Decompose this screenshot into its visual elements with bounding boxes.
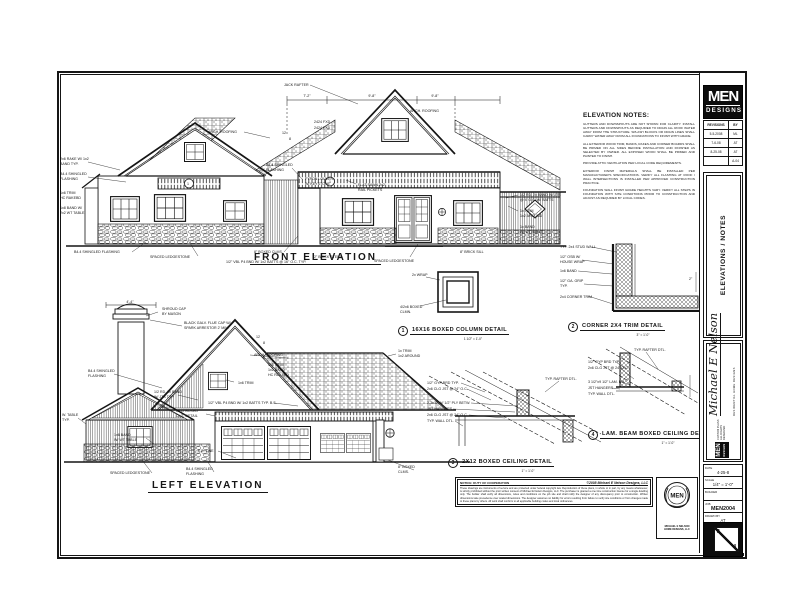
callout-label: 12	[256, 335, 260, 339]
callout-label: 1x6 TRIM	[268, 363, 284, 367]
revisions-by-header: BY	[729, 121, 742, 129]
callout-label: 1/2" GA. GRIP	[560, 279, 584, 283]
revision-date: 8-25-08	[704, 148, 729, 156]
callout-label: 2x6 RAKE W/ 1x2	[60, 157, 89, 161]
callout-label: @ 4' O.C. W/ BATTS	[520, 198, 554, 202]
sheet-number-box: 2 4	[703, 522, 743, 557]
revision-date: 7-6-08	[704, 139, 729, 147]
callout-label: HC RAKEBD	[268, 373, 289, 377]
sheet-number-diagonal: 2 4	[714, 527, 739, 552]
callout-label: 2x WRAP	[412, 273, 428, 277]
callout-label: 1x TRIM	[520, 209, 534, 213]
callout-label: W/ KEYSTONE	[305, 182, 330, 186]
revision-by: AT	[729, 139, 742, 147]
detail-4-number: 4	[588, 430, 598, 440]
date-value: 4-25-8	[705, 470, 741, 475]
elevation-notes-list: GUTTERS AND DOWNSPOUTS ARE NOT SHOWN FOR…	[583, 122, 695, 200]
revisions-header: REVISIONS	[704, 121, 729, 129]
callout-label: TYP.	[560, 284, 568, 288]
callout-label: FLASHING	[88, 374, 106, 378]
detail-2-number: 2	[568, 322, 578, 332]
callout-label: 1x2 AROUND	[520, 214, 543, 218]
callout-label: TYP. 2x4 STUD WALL	[560, 245, 596, 249]
callout-label: 2X12 BOXED	[176, 409, 198, 413]
callout-label: 3 1/2"x9 1/2" LAM. BM.	[588, 380, 625, 384]
drawing-sheet-page: JACK RAFTER7'-2"9'-8"9'-8"ARCH. ROOFINGA…	[0, 0, 792, 612]
revisions-header-row: REVISIONS BY	[704, 121, 742, 129]
revisions-rows: 5-5-2008 ML 7-6-08 AT 8-25-08 AT	[704, 129, 742, 165]
callout-label: SPACED LEDGESTONE	[150, 255, 191, 259]
callout-label: 8	[289, 137, 291, 141]
left-elevation-drawing: 4'-4"SHROUD CAPBY MASONBLACK GALV. FLUE …	[58, 296, 488, 501]
scale-value: 1/4" = 1'-0"	[705, 482, 741, 487]
callout-label: 1x6 BAND	[560, 269, 577, 273]
copyright-notice-label: NOTICE: DUTY OF COOPERATION	[460, 481, 509, 485]
callout-label: 1	[329, 180, 331, 184]
elevation-note-item: GUTTERS AND DOWNSPOUTS ARE NOT SHOWN FOR…	[583, 122, 695, 138]
info-row-builder: BUILDER	[704, 488, 742, 500]
callout-label: SPACED LEDGESTONE	[110, 471, 151, 475]
callout-label: ARCH. ROOFING	[410, 109, 439, 113]
callout-label: 1x8 BAND W/	[60, 206, 82, 210]
firm-logo: MEN DESIGNS	[703, 85, 743, 119]
callout-label: HC RAKEBD	[60, 196, 81, 200]
callout-label: W/ JTS TYP.	[154, 395, 174, 399]
elevation-note-item: EXTERIOR FINISH MATERIALS SHALL BE INSTA…	[583, 169, 695, 185]
callout-label: 8	[263, 341, 265, 345]
signature-logo: MEN DESIGNS	[715, 442, 729, 458]
callout-label: BAND TYP.	[60, 162, 79, 166]
callout-label: FLASHING	[186, 472, 204, 476]
detail-2-title: CORNER 2X4 TRIM DETAIL	[580, 323, 665, 331]
callout-label: BLACK GALV. FLUE CAP W/	[184, 321, 231, 325]
elevation-note-item: ALL EXTERIOR WOOD TRIM, BANDS, RAKES AND…	[583, 142, 695, 158]
callout-label: 1x2 AROUND	[398, 354, 421, 358]
copyright-owner-label: ©2008 Michael E Nelson Designs, LLC	[587, 481, 648, 485]
elevation-notes-title: ELEVATION NOTES:	[583, 112, 695, 119]
revisions-table: REVISIONS BY 5-5-2008 ML 7-6-08 AT	[703, 120, 743, 166]
info-row-date: DATE 4-25-8	[704, 465, 742, 476]
callout-label: F.G. LINE	[198, 449, 214, 453]
callout-label: 1x6 TRIM	[238, 381, 254, 385]
left-elevation-title: LEFT ELEVATION	[148, 480, 268, 493]
elevation-notes: ELEVATION NOTES: GUTTERS AND DOWNSPOUTS …	[583, 112, 695, 204]
elevation-note-item: PROVIDE ATTIC VENTILATION PER LOCAL CODE…	[583, 161, 695, 165]
seal-caption-line2: HOME DESIGNS, LLC	[657, 528, 697, 531]
seal-monogram: MEN	[670, 494, 683, 500]
lam-beam-detail-drawing: TYP. RAFTER DTL.1/2" GYP BRD TYP.2x6 CLG…	[586, 345, 700, 419]
callout-label: 1x6 TRIM	[60, 191, 76, 195]
callout-label: W/ WT TABLE	[520, 230, 544, 234]
callout-label: CLMS.	[398, 470, 409, 474]
callout-label: 4'-4"	[126, 300, 134, 304]
callout-label: BY MASON	[162, 312, 181, 316]
callout-label: ARCH. ROOFING	[254, 353, 283, 357]
revision-by: AT	[729, 148, 742, 156]
callout-label: 2424 FXD	[314, 126, 331, 130]
callout-label: TYP. RAFTER DTL.	[634, 348, 666, 352]
callout-label: SHROUD CAP	[162, 307, 187, 311]
builder-label: BUILDER	[705, 490, 741, 494]
callout-label: 2"	[689, 277, 693, 281]
callout-label: 1x BAND	[520, 225, 535, 229]
project-info-table: DATE 4-25-8 SCALE 1/4" = 1'-0" BUILDER J…	[703, 464, 743, 525]
callout-label: 2424 FXD	[314, 120, 331, 124]
signature-logo-bottom: DESIGNS	[723, 442, 726, 458]
callout-label: TYP. RAFTER DTL.	[545, 377, 577, 381]
info-row-scale: SCALE 1/4" = 1'-0"	[704, 476, 742, 488]
firm-logo-top: MEN	[704, 88, 742, 105]
callout-label: 1x6 BAND	[114, 433, 131, 437]
revision-by: A-04	[729, 157, 742, 165]
callout-label: W. TABLE	[62, 413, 79, 417]
callout-label: B4.4 SHINGLED	[266, 163, 293, 167]
callout-label: 2x6 CLG JST @ 24" O.C.	[588, 366, 629, 370]
seal-emblem: MEN	[658, 478, 696, 520]
callout-label: 2x4 CORNER TRIM	[560, 295, 592, 299]
detail-2-scale: 3" = 1'-0"	[568, 333, 718, 337]
callout-label: JST HANGERS	[588, 386, 614, 390]
callout-label: 1/2" OSB W/	[560, 255, 580, 259]
callout-label: 8" BRICK SILL	[460, 250, 484, 254]
revision-by: ML	[729, 130, 742, 138]
callout-label: 1x2 BAND	[268, 368, 285, 372]
callout-label: TYP.	[62, 418, 70, 422]
callout-label: 1x TRIM	[398, 349, 412, 353]
corner-trim-detail-drawing: TYP. 2x4 STUD WALL1/2" OSB W/HOUSE WRAP1…	[558, 238, 703, 312]
callout-label: W/ WT TABLE	[114, 438, 138, 442]
corner-trim-detail-caption: 2CORNER 2X4 TRIM DETAIL 3" = 1'-0"	[568, 314, 718, 337]
callout-label: HOUSE WRAP	[560, 260, 585, 264]
firm-logo-bottom: DESIGNS	[706, 105, 740, 114]
signature-name-group: Michael E Nelson RESIDENTIAL HOME DESIGN…	[704, 313, 740, 416]
callout-label: B4.4 SHINGLED FLASHING	[74, 250, 120, 254]
callout-label: 1	[187, 182, 189, 186]
callout-label: JACK RAFTER	[284, 83, 309, 87]
callout-label: 1/2" GYP BRD TYP.	[588, 360, 620, 364]
signature-logo-top: MEN	[716, 442, 723, 458]
title-block-column: MEN DESIGNS REVISIONS BY 5-5-2008 ML 7-6…	[699, 73, 744, 553]
callout-label: 9'-8"	[368, 94, 376, 98]
callout-label: 1/2" VBL P4 BND W/ 1x2 BATTS TYP. B.S.	[208, 401, 277, 405]
callout-label: SPARK ARRESTOR 2' MIN.	[184, 326, 229, 330]
signature-block: MEN DESIGNS CUSTOM PLANS ALL RIGHTS RESE…	[703, 340, 743, 462]
signature-band: RESIDENTIAL HOME DESIGNS	[733, 367, 736, 416]
callout-label: 2x2 WT TABLE	[60, 211, 85, 215]
callout-label: FLASHING	[266, 168, 284, 172]
sheet-number-current: 2	[717, 529, 720, 535]
callout-label: 9'-8"	[431, 94, 439, 98]
revision-row: 5-5-2008 ML	[704, 129, 742, 138]
info-row-job: JOB MEN2004	[704, 500, 742, 512]
revision-row: 8-25-08 AT	[704, 147, 742, 156]
callout-label: B4.4 SHINGLED	[186, 467, 213, 471]
front-elevation-drawing: JACK RAFTER7'-2"9'-8"9'-8"ARCH. ROOFINGA…	[58, 76, 573, 266]
callout-label: FLASHING	[60, 177, 78, 181]
callout-label: B4.4 SHINGLED	[88, 369, 115, 373]
callout-label: B4.4 SHINGLED	[60, 172, 87, 176]
copyright-block: NOTICE: DUTY OF COOPERATION ©2008 Michae…	[455, 477, 653, 507]
callout-label: 7'-2"	[303, 94, 311, 98]
designer-seal: MEN MICHAEL E NELSON HOME DESIGNS, LLC	[656, 477, 698, 539]
detail-4-title: LAM. BEAM BOXED CEILING DETAIL	[600, 431, 715, 439]
elevation-note-item: FOUNDATION WALL FINISH GRADE HEIGHTS VAR…	[583, 188, 695, 200]
callout-label: FLAT SAWN 2x2	[358, 183, 385, 187]
copyright-body-text: These drawings are instruments of servic…	[460, 487, 648, 503]
callout-label: 1/2 RD. 2x BAND	[154, 390, 182, 394]
front-elevation-title: FRONT ELEVATION	[250, 252, 381, 265]
signature-side-lines: CUSTOM PLANS ALL RIGHTS RESERVED	[717, 418, 726, 440]
callout-label: 12	[282, 131, 286, 135]
callout-label: CLG. DETAIL	[176, 414, 198, 418]
designer-signature: Michael E Nelson	[706, 313, 721, 416]
sheet-number-total: 4	[733, 544, 736, 550]
callout-label: 8" BOXED	[398, 465, 415, 469]
revision-row: A-04	[704, 156, 742, 165]
revision-date	[704, 157, 729, 165]
revision-date: 5-5-2008	[704, 130, 729, 138]
signature-line2: ALL RIGHTS RESERVED	[720, 425, 726, 440]
revision-row: 7-6-08 AT	[704, 138, 742, 147]
callout-label: RAIL PICKETS	[358, 188, 383, 192]
callout-label: 1/2 RD. 2x BAND W/ JTS	[520, 193, 561, 197]
callout-label: TYP. WALL DTL.	[588, 392, 615, 396]
callout-label: ARCH. ROOFING	[208, 130, 237, 134]
